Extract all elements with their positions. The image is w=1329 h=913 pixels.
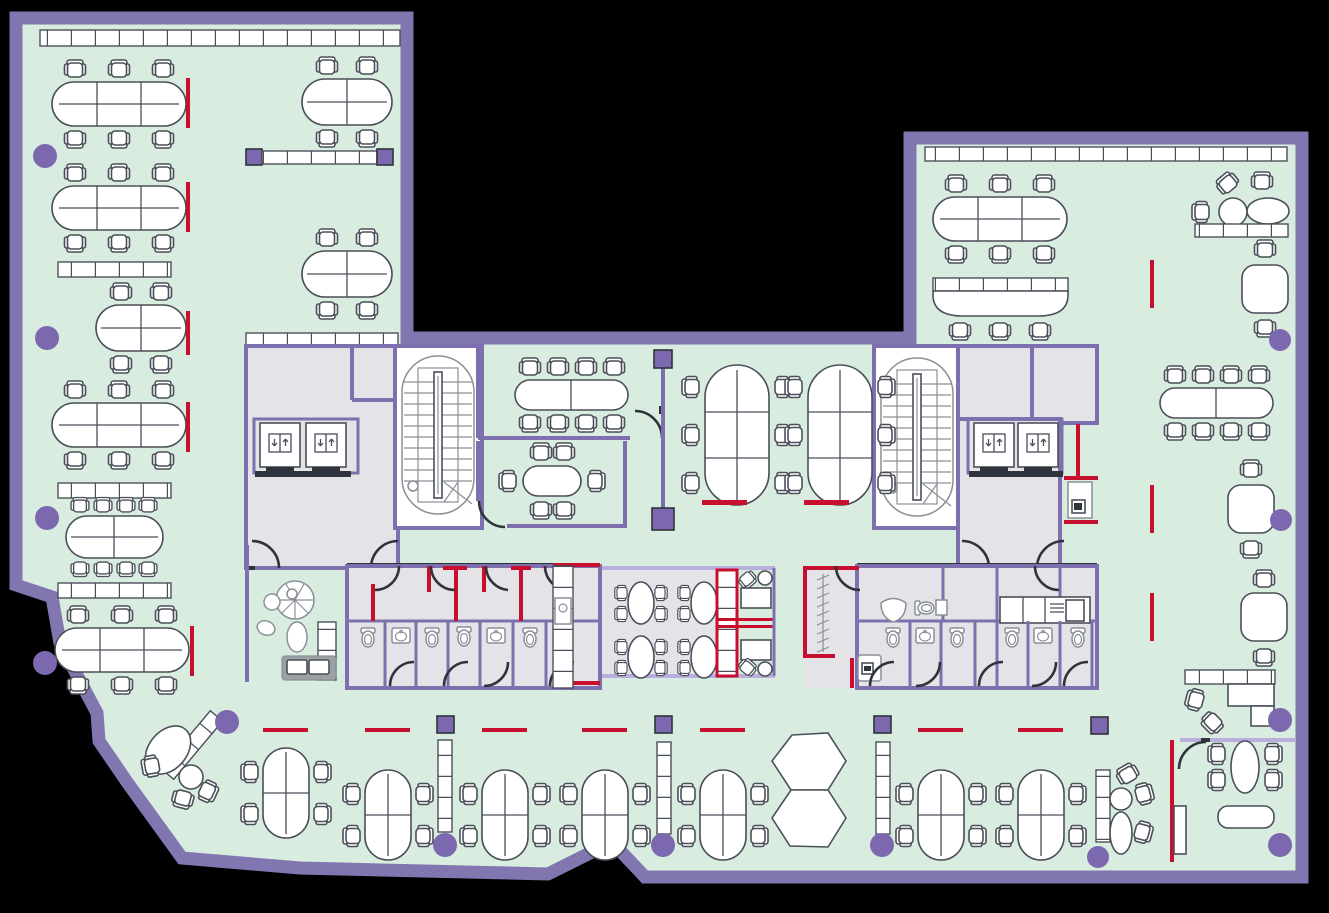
red-wall — [1076, 424, 1080, 476]
zone-team-desks-center — [682, 365, 895, 505]
round-table — [1219, 198, 1247, 226]
desk-screen — [804, 500, 849, 505]
sideboard — [58, 483, 171, 498]
half-oval-desk — [933, 291, 1068, 316]
column — [215, 710, 239, 734]
sideboard — [262, 151, 377, 164]
column-square — [377, 149, 393, 165]
sideboard — [58, 262, 171, 277]
column — [651, 833, 675, 857]
screen-marker — [365, 728, 410, 732]
partition-screen — [1150, 485, 1154, 533]
red-wall — [1064, 520, 1098, 524]
desk-screen — [186, 182, 190, 232]
partition-screen — [1150, 593, 1154, 641]
column — [870, 833, 894, 857]
oval-table — [1247, 198, 1289, 224]
column — [33, 144, 57, 168]
sideboard — [1185, 670, 1275, 684]
desk-screen — [186, 311, 190, 355]
column — [35, 506, 59, 530]
column — [433, 833, 457, 857]
sideboard — [58, 583, 171, 598]
screen-marker — [482, 728, 527, 732]
serving-counter — [717, 570, 737, 676]
column — [1087, 846, 1109, 868]
desk — [1218, 806, 1274, 828]
column-square — [246, 149, 262, 165]
utility-counter — [553, 566, 573, 688]
desk-screen — [186, 78, 190, 128]
shelf-unit — [438, 740, 452, 832]
screen-marker — [582, 728, 627, 732]
screen-marker — [263, 728, 308, 732]
red-wall — [1064, 476, 1098, 480]
shelf-unit — [876, 742, 890, 834]
column — [1268, 708, 1292, 732]
zone-restrooms-right — [803, 563, 1097, 688]
desk-screen — [702, 500, 747, 505]
desk-screen — [190, 626, 194, 676]
screen-marker — [918, 728, 963, 732]
desk-screen — [186, 402, 190, 452]
column — [1269, 329, 1291, 351]
shelf-unit — [657, 742, 671, 834]
column — [1270, 509, 1292, 531]
side-table — [264, 594, 280, 610]
wall-shelf — [925, 147, 1287, 161]
column-square — [1091, 717, 1108, 734]
column-square — [874, 716, 891, 733]
column — [33, 651, 57, 675]
desk-shelf — [933, 278, 1068, 291]
shelf-unit — [1096, 770, 1110, 842]
wall-shelf — [40, 30, 400, 46]
column-square — [437, 716, 454, 733]
column-square — [655, 716, 672, 733]
l-desk — [1228, 684, 1274, 706]
wall-shelf — [246, 333, 398, 345]
floor-plan-canvas — [0, 0, 1329, 913]
screen-marker — [1018, 728, 1063, 732]
side-table — [1174, 806, 1186, 854]
column — [35, 326, 59, 350]
sink-counter — [555, 598, 571, 624]
pouf — [1110, 812, 1132, 854]
column-square — [652, 508, 674, 530]
glass-wall — [1180, 738, 1296, 742]
zone-restrooms-left — [347, 563, 600, 688]
column-square — [654, 350, 672, 368]
pouf — [287, 622, 307, 652]
round-table — [179, 765, 203, 789]
oval-meeting-table — [1231, 741, 1259, 793]
elevator-lobby-right-upper — [958, 346, 1097, 423]
floor-plan-drawing — [0, 0, 1329, 913]
column — [1268, 833, 1292, 857]
sideboard — [1195, 224, 1288, 237]
screen-marker — [700, 728, 745, 732]
round-table — [1110, 788, 1132, 810]
partition-screen — [1150, 260, 1154, 308]
